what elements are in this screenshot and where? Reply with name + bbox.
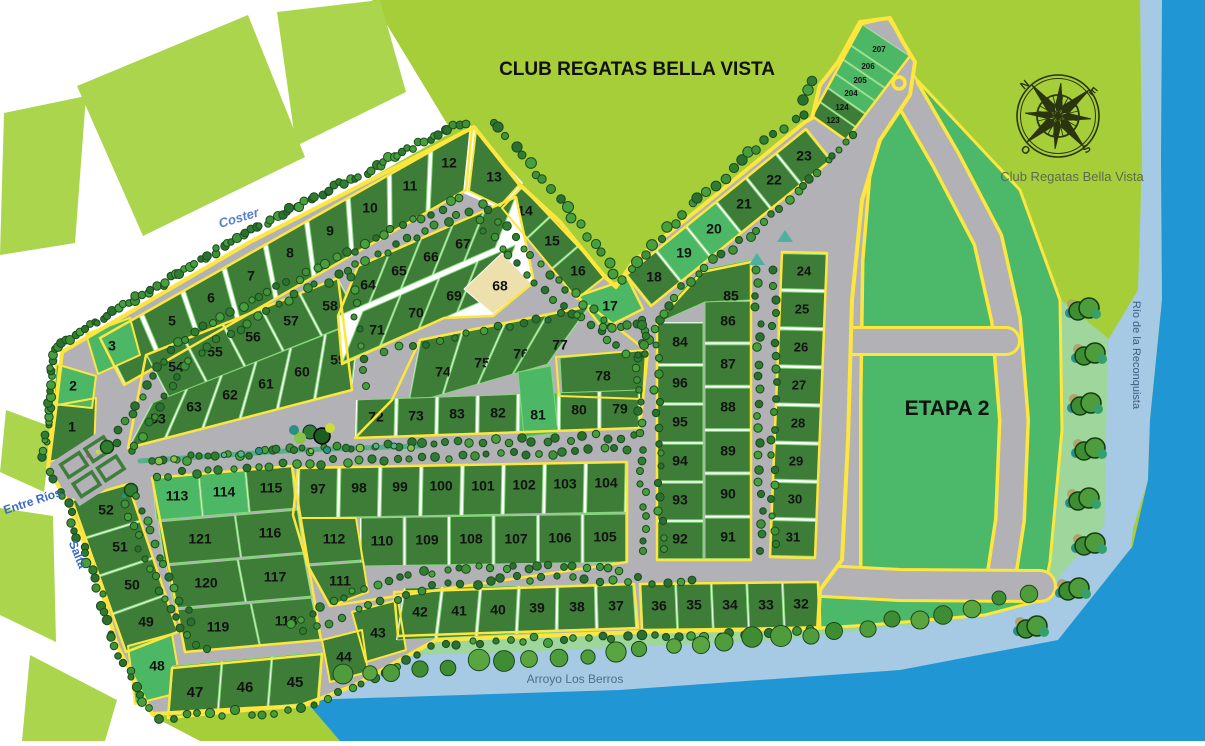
svg-text:117: 117 [264, 569, 287, 585]
svg-text:66: 66 [423, 249, 439, 265]
svg-text:28: 28 [791, 415, 805, 430]
svg-text:25: 25 [795, 301, 809, 316]
svg-text:49: 49 [138, 614, 154, 630]
svg-text:73: 73 [408, 408, 424, 424]
svg-text:91: 91 [720, 529, 736, 545]
svg-text:45: 45 [287, 674, 304, 691]
svg-text:39: 39 [529, 600, 545, 616]
svg-text:3: 3 [108, 338, 116, 354]
svg-text:111: 111 [329, 573, 351, 589]
svg-text:17: 17 [602, 298, 618, 314]
svg-text:36: 36 [651, 598, 667, 614]
svg-text:71: 71 [369, 322, 385, 338]
svg-text:69: 69 [446, 288, 462, 304]
svg-text:204: 204 [844, 89, 858, 98]
svg-text:2: 2 [69, 378, 77, 394]
svg-text:124: 124 [835, 103, 849, 112]
svg-text:Río de la Reconquista: Río de la Reconquista [1130, 301, 1142, 410]
svg-text:61: 61 [258, 376, 274, 392]
svg-text:86: 86 [720, 313, 736, 329]
svg-text:18: 18 [646, 269, 662, 285]
svg-text:110: 110 [371, 533, 394, 549]
svg-text:20: 20 [706, 221, 722, 237]
svg-text:106: 106 [548, 530, 572, 546]
svg-text:23: 23 [796, 148, 812, 164]
svg-text:83: 83 [449, 406, 465, 422]
svg-text:43: 43 [370, 625, 386, 641]
svg-text:9: 9 [326, 223, 334, 239]
svg-text:47: 47 [187, 684, 204, 701]
svg-text:11: 11 [403, 178, 418, 194]
svg-text:8: 8 [286, 245, 294, 261]
svg-text:34: 34 [722, 597, 738, 613]
svg-text:44: 44 [336, 649, 352, 665]
svg-text:7: 7 [247, 268, 255, 284]
svg-text:109: 109 [415, 532, 439, 548]
svg-text:101: 101 [471, 478, 495, 494]
svg-text:70: 70 [408, 305, 424, 321]
svg-text:104: 104 [594, 475, 618, 491]
svg-text:96: 96 [672, 375, 688, 391]
svg-text:113: 113 [166, 488, 189, 504]
svg-text:24: 24 [797, 263, 812, 278]
svg-text:50: 50 [124, 577, 140, 593]
svg-text:94: 94 [672, 453, 688, 469]
svg-text:27: 27 [792, 377, 806, 392]
svg-text:68: 68 [492, 278, 508, 294]
svg-text:57: 57 [283, 313, 299, 329]
svg-text:80: 80 [571, 402, 587, 418]
svg-text:97: 97 [310, 481, 326, 497]
svg-text:41: 41 [451, 603, 467, 619]
svg-text:46: 46 [237, 679, 254, 696]
svg-text:120: 120 [194, 575, 218, 591]
svg-text:33: 33 [758, 597, 774, 613]
svg-text:100: 100 [429, 478, 453, 494]
svg-text:10: 10 [362, 200, 378, 216]
svg-text:5: 5 [168, 313, 176, 329]
svg-text:Club Regatas Bella Vista: Club Regatas Bella Vista [1000, 169, 1144, 184]
svg-text:Arroyo Los Berros: Arroyo Los Berros [527, 672, 624, 686]
svg-text:78: 78 [595, 368, 611, 384]
svg-text:108: 108 [459, 531, 483, 547]
svg-text:19: 19 [676, 245, 692, 261]
svg-text:88: 88 [720, 399, 736, 415]
svg-text:87: 87 [720, 356, 736, 372]
svg-text:121: 121 [188, 531, 212, 547]
svg-text:107: 107 [504, 531, 528, 547]
svg-text:98: 98 [351, 480, 367, 496]
svg-text:99: 99 [392, 479, 408, 495]
svg-text:115: 115 [260, 480, 283, 496]
svg-text:16: 16 [570, 263, 586, 279]
svg-text:64: 64 [360, 277, 376, 293]
svg-text:13: 13 [486, 169, 502, 185]
svg-text:116: 116 [259, 525, 282, 541]
svg-text:37: 37 [608, 598, 624, 614]
svg-text:206: 206 [861, 62, 875, 71]
svg-text:63: 63 [186, 399, 202, 415]
svg-text:52: 52 [98, 502, 114, 518]
svg-text:12: 12 [441, 155, 457, 171]
svg-text:105: 105 [593, 529, 617, 545]
svg-text:81: 81 [530, 407, 546, 423]
svg-text:1: 1 [68, 419, 76, 435]
svg-text:90: 90 [720, 486, 736, 502]
svg-text:93: 93 [672, 492, 688, 508]
svg-text:65: 65 [391, 263, 407, 279]
svg-text:26: 26 [794, 339, 808, 354]
svg-text:38: 38 [569, 599, 585, 615]
svg-text:84: 84 [672, 334, 688, 350]
svg-text:92: 92 [672, 531, 688, 547]
svg-text:82: 82 [490, 405, 506, 421]
svg-text:89: 89 [720, 443, 736, 459]
svg-text:35: 35 [686, 597, 702, 613]
svg-text:102: 102 [512, 477, 536, 493]
svg-text:CLUB REGATAS BELLA VISTA: CLUB REGATAS BELLA VISTA [499, 59, 775, 80]
svg-text:21: 21 [736, 196, 752, 212]
svg-text:29: 29 [789, 453, 803, 468]
svg-text:207: 207 [872, 45, 886, 54]
svg-text:58: 58 [322, 298, 338, 314]
svg-text:77: 77 [552, 337, 568, 353]
svg-text:112: 112 [323, 531, 346, 547]
svg-text:123: 123 [826, 116, 840, 125]
svg-text:30: 30 [788, 491, 802, 506]
svg-text:42: 42 [412, 604, 428, 620]
svg-text:51: 51 [112, 539, 128, 555]
svg-text:60: 60 [294, 364, 310, 380]
svg-text:79: 79 [612, 401, 628, 417]
svg-text:62: 62 [222, 387, 238, 403]
svg-text:31: 31 [786, 529, 800, 544]
svg-text:6: 6 [207, 290, 215, 306]
svg-text:95: 95 [672, 414, 688, 430]
svg-text:103: 103 [553, 476, 577, 492]
svg-text:15: 15 [544, 233, 560, 249]
svg-text:114: 114 [213, 484, 236, 500]
svg-text:56: 56 [245, 329, 261, 345]
svg-text:119: 119 [207, 619, 230, 635]
svg-text:ETAPA 2: ETAPA 2 [905, 397, 990, 420]
svg-text:22: 22 [766, 172, 782, 188]
svg-text:32: 32 [793, 596, 809, 612]
svg-text:205: 205 [853, 76, 867, 85]
svg-text:40: 40 [490, 602, 506, 618]
svg-text:48: 48 [149, 658, 165, 674]
svg-text:85: 85 [723, 288, 739, 304]
svg-text:67: 67 [455, 236, 471, 252]
